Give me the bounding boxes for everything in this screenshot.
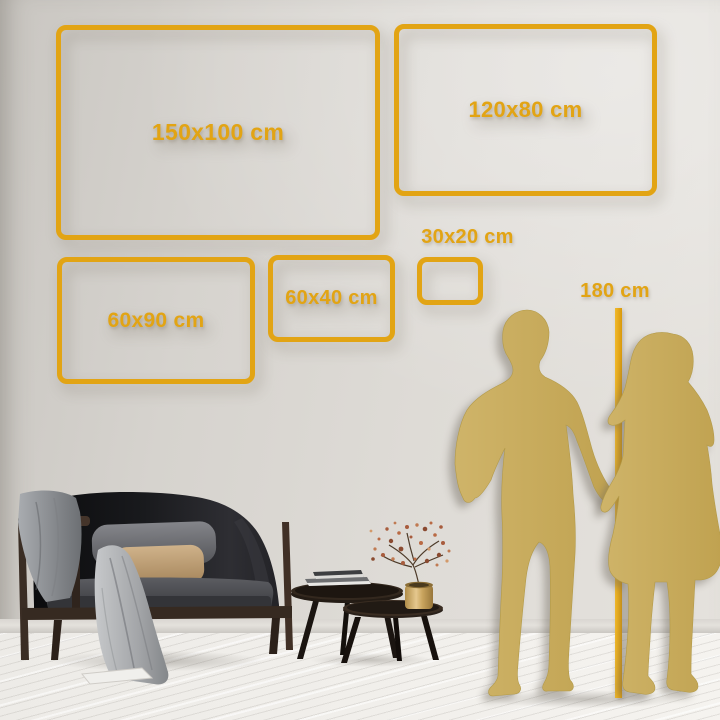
sofa-illustration [6,478,306,690]
size-label-30x20: 30x20 cm [405,226,530,249]
size-frame-150x100: 150x100 cm [56,25,380,240]
size-label-60x40: 60x40 cm [285,287,377,310]
couple-silhouettes [445,298,720,714]
size-frame-60x40: 60x40 cm [268,255,395,342]
woman-silhouette [601,333,720,695]
sofa-front-right-leg [269,618,280,654]
plant-blossoms [370,522,451,586]
size-label-150x100: 150x100 cm [152,119,284,146]
coffee-tables-illustration [283,515,455,668]
sofa-bottom-rail [22,606,292,620]
size-label-60x90: 60x90 cm [108,309,205,333]
brass-vase [405,582,433,609]
size-frame-120x80: 120x80 cm [394,24,657,196]
size-label-120x80: 120x80 cm [468,97,582,123]
man-silhouette [455,310,615,696]
sofa-front-left-leg [51,620,62,660]
arm-blanket [18,491,82,602]
size-guide-image: 150x100 cm 120x80 cm 60x90 cm 60x40 cm 3… [0,0,720,720]
books-stack [305,570,371,586]
size-frame-60x90: 60x90 cm [57,257,255,384]
